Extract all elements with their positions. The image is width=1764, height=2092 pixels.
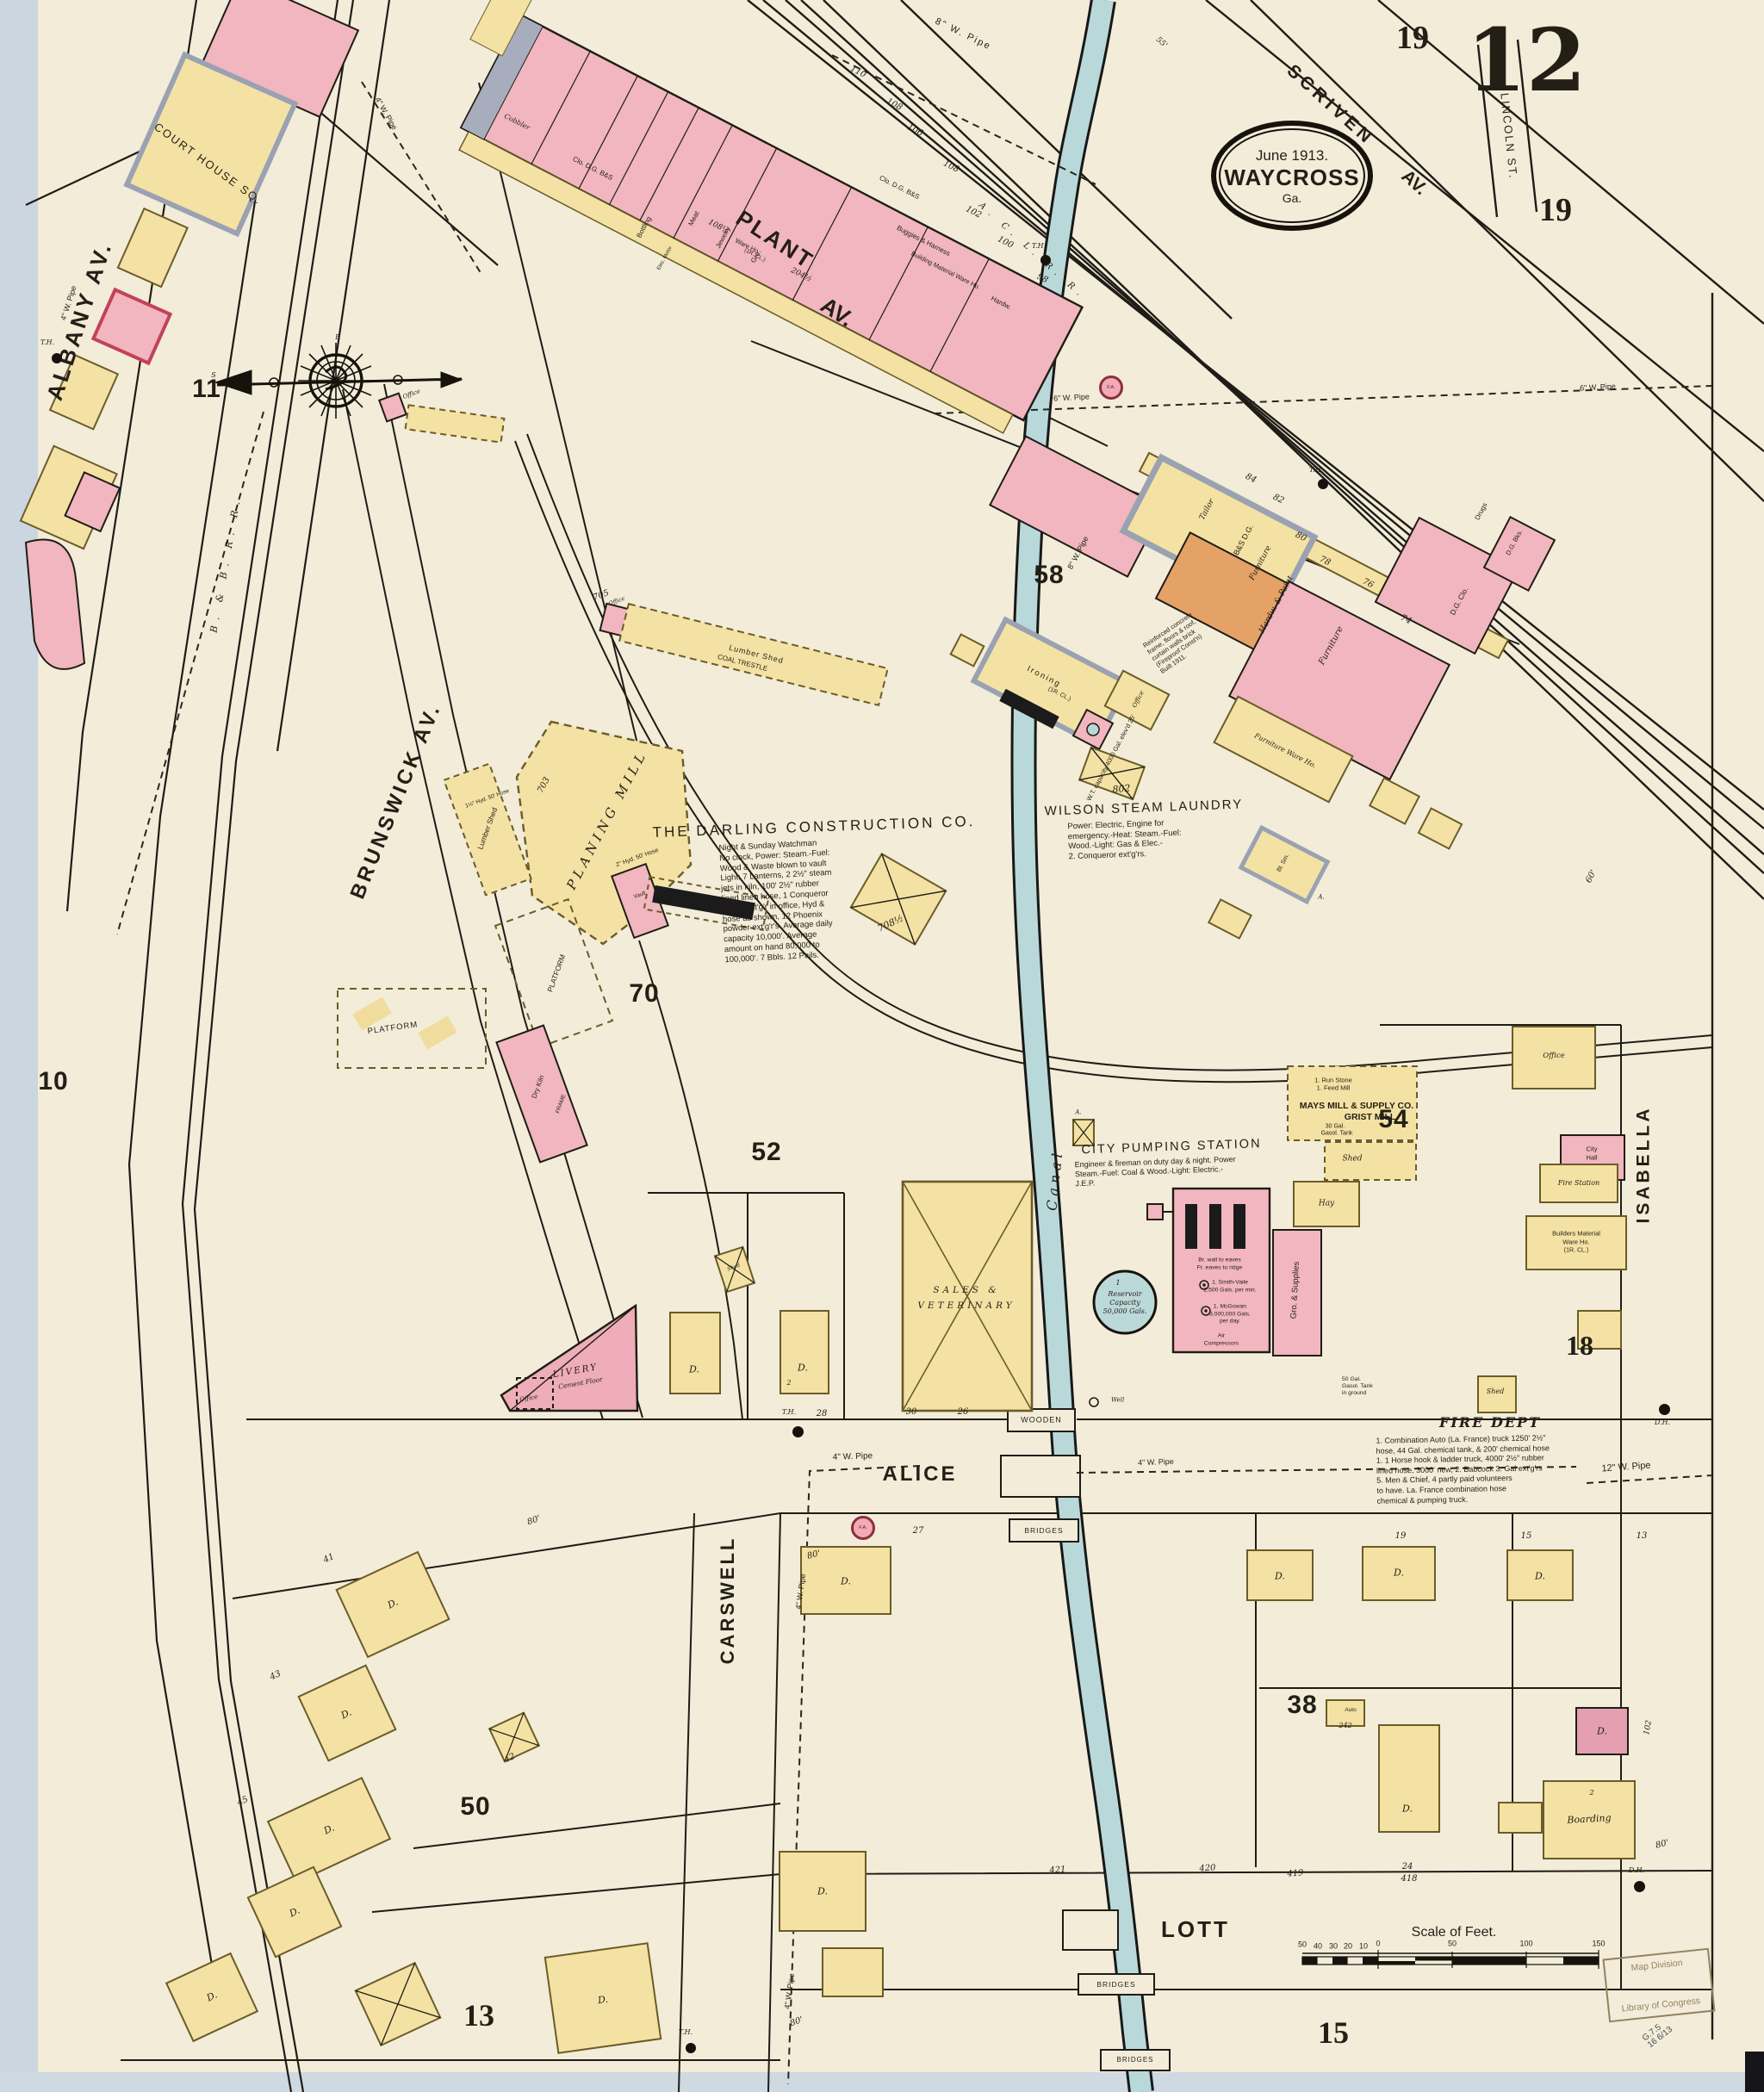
scale-title: Scale of Feet. [1412,1926,1497,1940]
dh-hydrant-dot [1634,1881,1645,1892]
dh-label: D.H. [1655,1419,1670,1426]
block54-buildings [1478,1027,1626,1412]
dwelling-label: D. [689,1365,699,1375]
stamp-line2: Library of Congress [1612,1995,1710,2015]
stamp-line1: Map Division [1608,1955,1705,1976]
scale-tick: 20 [1344,1943,1352,1951]
street-isabella: ISABELLA [1635,1106,1653,1224]
block-50: 50 [460,1794,490,1820]
pump-l4: 2,500 Gals. per min. [1203,1288,1256,1294]
th-hydrant-dot [1318,479,1328,489]
house-number: 15 [1521,1532,1532,1541]
block-10: 10 [38,1069,68,1095]
dwelling-label: D. [1275,1572,1285,1581]
adjacent-sheet-bottom-right: 15 [1318,2017,1349,2048]
pipe-4in-label: 4" W. Pipe [1138,1458,1174,1467]
planing-mill-buildings [338,394,946,1163]
th-hydrant-dot [792,1426,804,1437]
house-number: 421 [1049,1865,1066,1875]
mays-gasol2: Gasol. Tank [1321,1131,1353,1137]
street-carswell: CARSWELL [718,1536,737,1665]
dwelling-label: D. [798,1363,808,1373]
mays-title2: GRIST MILL. [1345,1113,1398,1122]
dh-hydrant-dot [1659,1404,1670,1415]
dwellings-center [780,1547,891,1996]
house-number: 242 [1339,1723,1351,1729]
sanborn-map-sheet: 12 19 19 18 15 13 June 1913. WAYCROSS Ga… [0,0,1764,2092]
th-hydrant-dot [686,2043,696,2053]
house-number: 420 [1199,1864,1216,1873]
stories-label: 2 [1589,1790,1593,1797]
th-hydrant-dot [1040,255,1051,265]
gasol-tank-note: 50 Gal. Gasol. Tank in ground [1342,1376,1373,1397]
title-oval: June 1913. WAYCROSS Ga. [1211,121,1373,231]
house-number: 26 [958,1408,969,1417]
well-label: Well [1111,1398,1124,1404]
street-alice: ALICE [883,1464,958,1485]
a-label-2: A. [1075,1110,1081,1116]
mays-run-stone: 1. Run Stone [1314,1077,1352,1083]
scale-tick: 50 [1448,1940,1457,1948]
hay-label: Hay [1319,1201,1334,1208]
loc-stamp: Map Division Library of Congress [1602,1948,1715,2023]
house-number: 802 [1112,784,1131,795]
sheet-number: 12 [1466,17,1586,103]
pump-l7: per day. [1220,1319,1240,1325]
dwelling-label: D. [841,1577,851,1586]
builders-label-2: Ware Ho. [1562,1238,1589,1245]
adjacent-sheet-right-top: 19 [1539,194,1572,227]
a-label-1: A. [1318,895,1324,901]
pump-l1: Br. wall to eaves [1198,1258,1241,1264]
dwelling-label: D. [1394,1568,1404,1578]
scale-tick: 30 [1329,1943,1338,1951]
pump-l2: Fr. eaves to ridge [1197,1266,1243,1272]
pump-l9: Compressors [1204,1342,1239,1348]
stories-label: 2 [786,1380,791,1387]
shed-label-2: Shed [1487,1388,1505,1395]
auto-label: Auto [1345,1708,1356,1714]
fire-dept-title: FIRE DEPT [1439,1416,1541,1430]
compass-e: E [335,334,340,341]
adjacent-sheet-top: 19 [1396,22,1429,54]
block-38: 38 [1287,1692,1317,1718]
darling-notes: Night & Sunday Watchman No clock, Power:… [718,838,835,965]
map-geometry [0,0,1764,2092]
bridges-label: BRIDGES [1096,1981,1135,1989]
scale-bar [1302,1950,1599,1969]
fire-alarm-box: F.A. [1099,376,1123,400]
fire-dept-notes: 1. Combination Auto (La. France) truck 1… [1376,1433,1550,1506]
wilson-notes: Power: Electric, Engine for emergency.-H… [1067,818,1182,862]
reservoir-l2: Capacity [1109,1300,1140,1307]
fire-station-label: Fire Station [1558,1180,1599,1187]
th-label: T.H. [782,1409,796,1416]
builders-label-1: Builders Material [1552,1230,1600,1237]
pump-l3: 1. Smith-Vaile [1212,1281,1248,1287]
block52-buildings [501,1182,1032,1411]
reservoir-l1: Reservoir [1108,1291,1141,1298]
reservoir-n: 1 [1115,1280,1120,1287]
th-label: T.H. [40,339,54,346]
th-hydrant-dot [52,353,62,363]
street-lott: LOTT [1161,1918,1230,1940]
dwelling-label: D. [817,1887,828,1896]
pump-l6: 3,000,000 Gals. [1209,1313,1251,1319]
builders-ircl-label: (1R. CL.) [1564,1248,1588,1254]
dh-label: D.H. [1629,1867,1644,1874]
city-hall-label-2: Hall [1587,1154,1598,1161]
block-52: 52 [751,1139,781,1165]
fire-alarm-box: F.A. [851,1516,875,1540]
mays-feed-mill: 1. Feed Mill [1317,1084,1351,1091]
block-70: 70 [629,981,659,1007]
th-label: T.H. [679,2029,693,2036]
block-58: 58 [1034,562,1064,588]
scale-tick: 100 [1519,1940,1532,1948]
pipe-4in-label: 4" W. Pipe [833,1452,873,1462]
pump-l8: Air [1218,1334,1225,1340]
scale-tick: 50 [1298,1941,1307,1949]
dwelling-label: D. [597,1995,608,2006]
city-hall-label-1: City [1587,1145,1598,1152]
sales-label-1: SALES & [933,1286,999,1295]
house-number: 30 [906,1408,917,1417]
adjacent-sheet-right-bottom: 18 [1566,1332,1593,1359]
house-number: 24 [1402,1863,1413,1872]
house-number: 13 [1637,1532,1648,1541]
dwelling-label: D. [1597,1727,1607,1736]
scale-tick: 40 [1314,1943,1322,1951]
bridges [1001,1409,1170,2070]
compass-s: S [211,372,215,379]
scale-tick: 150 [1592,1940,1605,1948]
office-label-4: Office [1543,1052,1565,1060]
sales-label-2: VETERINARY [917,1301,1015,1311]
reservoir-l3: 50,000 Gals. [1103,1308,1147,1315]
house-number: 419 [1287,1869,1304,1878]
wooden-bridge-label: WOODEN [1021,1417,1062,1425]
dwelling-label: D. [1535,1572,1545,1581]
adjacent-sheet-bottom-left: 13 [463,2000,494,2031]
house-number: 27 [913,1527,924,1536]
house-number: 418 [1401,1875,1417,1884]
th-label: T.H. [1032,243,1046,250]
pump-l5: 1. McGowan [1214,1305,1246,1311]
bridges-label: BRIDGES [1116,2057,1153,2064]
bridges-label: BRIDGES [1024,1527,1063,1535]
block-11: 11 [192,376,221,402]
th-label: T.H. [1309,467,1323,474]
mays-shed: Shed [1342,1156,1362,1164]
scale-tick: 10 [1359,1943,1368,1951]
pumping-notes: Engineer & fireman on duty day & night. … [1074,1155,1236,1189]
mays-gasol1: 30 Gal. [1326,1124,1345,1130]
boarding-label: Boarding [1567,1813,1612,1825]
house-number: 28 [817,1410,828,1418]
scale-tick: 0 [1376,1940,1380,1948]
house-number: 19 [1395,1532,1407,1541]
mays-title1: MAYS MILL & SUPPLY CO. [1300,1102,1413,1111]
dwelling-label: D. [1402,1804,1413,1814]
